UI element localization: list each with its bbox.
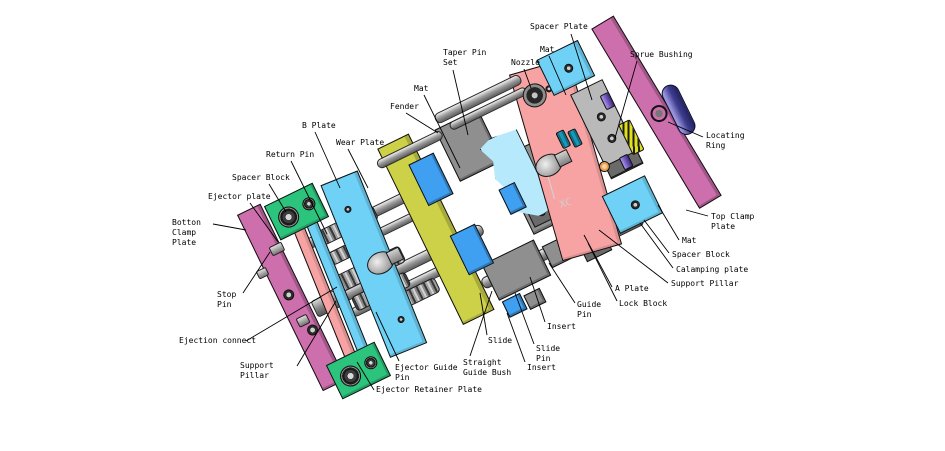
part-label-stop-pin: Stop Pin xyxy=(217,290,236,310)
part-label-lock-block: Lock Block xyxy=(619,299,667,309)
part-label-fender: Fender xyxy=(390,102,419,112)
part-label-sprue-bushing: Sprue Bushing xyxy=(630,50,693,60)
leader-line-ejection-connect xyxy=(246,287,337,341)
part-label-calamping-plate: Calamping plate xyxy=(676,265,748,275)
part-label-spacer-block-right: Spacer Block xyxy=(672,250,730,260)
part-label-ejector-guide-pin: Ejector Guide Pin xyxy=(395,363,458,383)
leader-line-spacer-block-left xyxy=(269,184,286,212)
leader-line-nozzle xyxy=(524,69,531,88)
part-label-slide: Slide xyxy=(488,336,512,346)
part-label-support-pillar-left: Support Pillar xyxy=(240,361,274,381)
part-label-spacer-plate: Spacer Plate xyxy=(530,22,588,32)
part-label-spacer-block-left: Spacer Block xyxy=(232,173,290,183)
part-label-top-clamp-plate: Top Clamp Plate xyxy=(711,212,754,232)
part-label-return-pin: Return Pin xyxy=(266,150,314,160)
leader-line-sprue-bushing xyxy=(615,61,637,138)
leader-line-calamping-plate xyxy=(640,223,673,268)
leader-line-return-pin xyxy=(291,161,327,234)
leader-line-wear-plate xyxy=(348,149,368,188)
leader-line-support-pillar-left xyxy=(297,301,336,366)
leader-line-fender xyxy=(406,113,438,133)
leader-line-lock-block xyxy=(588,243,617,301)
part-label-insert-mid: Insert xyxy=(547,322,576,332)
leader-line-spacer-plate xyxy=(571,34,592,100)
part-label-ejector-plate: Ejector plate xyxy=(208,192,271,202)
leader-line-mat-left xyxy=(424,95,460,168)
part-label-mat-left: Mat xyxy=(414,84,428,94)
part-label-mat-right: Mat xyxy=(682,236,696,246)
part-label-taper-pin-set: Taper Pin Set xyxy=(443,48,486,68)
leader-line-stop-pin xyxy=(243,252,270,293)
leader-line-locating-ring xyxy=(668,122,703,137)
part-label-slide-pin: Slide Pin xyxy=(536,344,560,364)
part-label-a-plate: A Plate xyxy=(615,284,649,294)
part-label-support-pillar-right: Support Pillar xyxy=(671,279,738,289)
leader-line-slide-pin xyxy=(515,293,534,344)
part-label-wear-plate: Wear Plate xyxy=(336,138,384,148)
part-label-ejector-retainer-plate: Ejector Retainer Plate xyxy=(376,385,482,395)
part-label-bottom-clamp-plate: Botton Clamp Plate xyxy=(172,218,201,248)
leader-line-a-plate xyxy=(584,235,612,287)
part-label-b-plate: B Plate xyxy=(302,121,336,131)
leader-line-ejector-retainer-plate xyxy=(357,362,374,390)
leader-line-ejector-guide-pin xyxy=(376,312,399,361)
part-label-locating-ring: Locating Ring xyxy=(706,131,745,151)
leader-line-insert-mid xyxy=(530,277,545,322)
mold-diagram-canvas: Spacer PlateMatNozzleTaper Pin SetSprue … xyxy=(0,0,945,451)
leader-line-mat-right xyxy=(658,205,679,240)
part-label-straight-guide-bush: Straight Guide Bush xyxy=(463,358,511,378)
leader-line-spacer-block-right xyxy=(644,220,669,253)
part-label-ejection-connect: Ejection connect xyxy=(179,336,256,346)
leader-line-mat-top xyxy=(549,56,566,95)
leader-line-top-clamp-plate xyxy=(686,210,708,216)
part-label-mat-top: Mat xyxy=(540,45,554,55)
leader-line-taper-pin-set xyxy=(453,70,468,135)
leader-line-guide-pin xyxy=(549,263,575,303)
part-label-guide-pin: Guide Pin xyxy=(577,300,601,320)
leader-line-bottom-clamp-plate xyxy=(213,224,246,230)
leader-line-slide xyxy=(480,293,487,335)
part-label-nozzle: Nozzle xyxy=(511,58,540,68)
part-label-insert-bottom: Insert xyxy=(527,363,556,373)
leader-line-ejector-plate xyxy=(250,203,278,242)
